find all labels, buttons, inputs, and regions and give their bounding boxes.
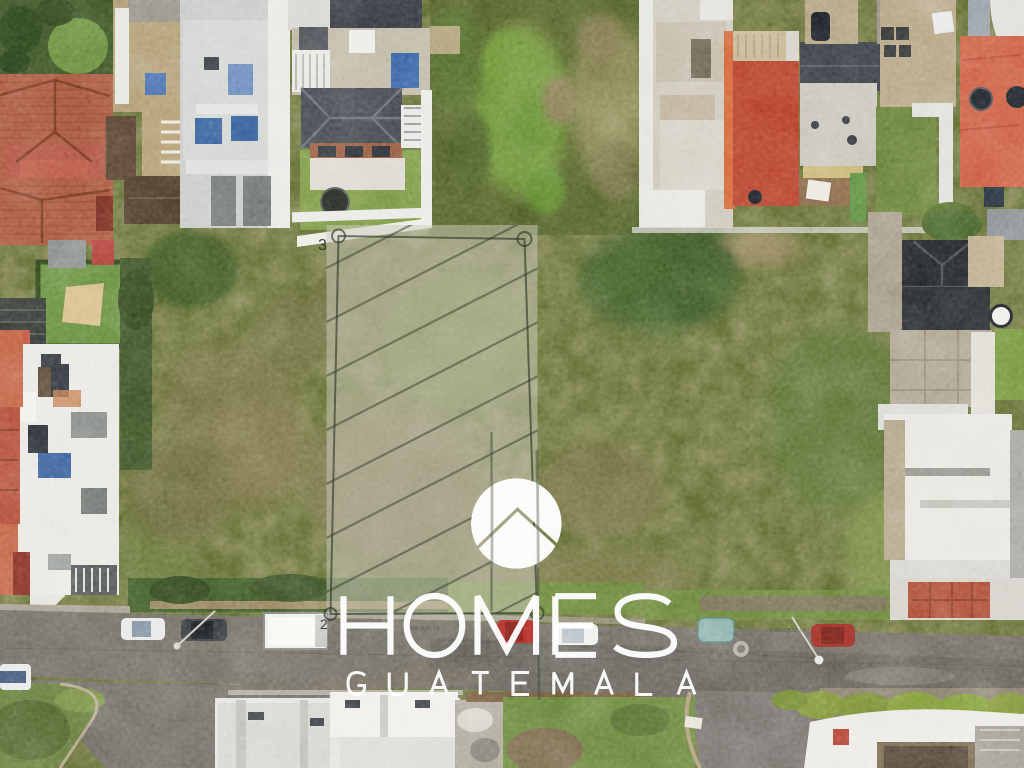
svg-text:2: 2 (320, 616, 328, 632)
svg-text:BANQUETA: BANQUETA (770, 628, 807, 634)
svg-text:3: 3 (318, 237, 327, 254)
